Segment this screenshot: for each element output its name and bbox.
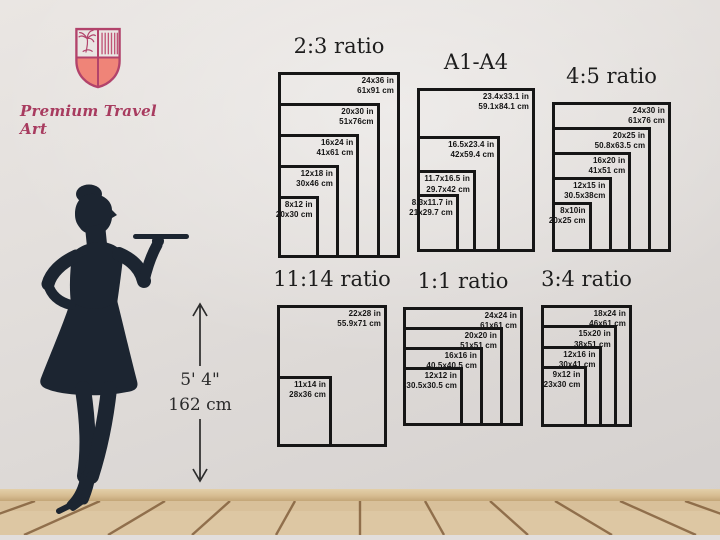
chart-title: 3:4 ratio	[501, 267, 672, 297]
size-label: 16x20 in41x51 cm	[588, 156, 625, 177]
size-label: 22x28 in55.9x71 cm	[337, 309, 381, 330]
size-boxes: 24x24 in61x61 cm20x20 in51x51 cm16x16 in…	[403, 307, 523, 426]
size-chart-4-5-ratio: 4:5 ratio 24x30 in61x76 cm20x25 in50.8x6…	[552, 102, 671, 252]
shield-logo-icon	[71, 24, 125, 90]
size-label: 24x36 in61x91 cm	[357, 76, 394, 97]
size-boxes: 18x24 in46x61 cm15x20 in38x51 cm12x16 in…	[541, 305, 632, 427]
size-boxes: 23.4x33.1 in59.1x84.1 cm16.5x23.4 in42x5…	[417, 88, 535, 252]
size-box-11x14in: 11x14 in28x36 cm	[277, 376, 332, 447]
arrow-down-icon	[189, 419, 211, 483]
brand-logo: Premium Travel Art	[18, 24, 178, 138]
size-box-12x12in: 12x12 in30.5x30.5 cm	[403, 367, 463, 427]
size-chart-a1-a4: A1-A4 23.4x33.1 in59.1x84.1 cm16.5x23.4 …	[417, 88, 535, 252]
size-label: 12x15 in30.5x38cm	[564, 181, 605, 202]
brand-name: Premium Travel Art	[18, 102, 178, 138]
size-box-8x10in: 8x10in20x25 cm	[552, 202, 592, 252]
size-label: 23.4x33.1 in59.1x84.1 cm	[478, 92, 529, 113]
size-boxes: 24x36 in61x91 cm20x30 in51x76cm16x24 in4…	[278, 72, 400, 258]
size-label: 24x30 in61x76 cm	[628, 106, 665, 127]
height-marker: 5' 4" 162 cm	[164, 302, 236, 483]
size-box-8.3x11.7in: 8.3x11.7 in21x29.7 cm	[417, 194, 459, 252]
size-label: 16x24 in41x61 cm	[316, 138, 353, 159]
size-boxes: 24x30 in61x76 cm20x25 in50.8x63.5 cm16x2…	[552, 102, 671, 252]
height-cm-label: 162 cm	[168, 393, 232, 418]
size-label: 8.3x11.7 in21x29.7 cm	[409, 198, 453, 219]
arrow-up-icon	[189, 302, 211, 366]
size-label: 12x18 in30x46 cm	[296, 169, 333, 190]
size-label: 8x12 in20x30 cm	[276, 200, 313, 221]
size-label: 9x12 in23x30 cm	[544, 370, 581, 391]
size-box-9x12in: 9x12 in23x30 cm	[541, 366, 587, 427]
size-label: 11x14 in28x36 cm	[289, 380, 326, 401]
size-label: 11.7x16.5 in29.7x42 cm	[424, 174, 470, 195]
size-label: 20x30 in51x76cm	[339, 107, 374, 128]
size-label: 16.5x23.4 in42x59.4 cm	[448, 140, 494, 161]
size-boxes: 22x28 in55.9x71 cm11x14 in28x36 cm	[277, 305, 387, 447]
size-chart-11-14-ratio: 11:14 ratio 22x28 in55.9x71 cm11x14 in28…	[277, 305, 387, 447]
chart-title: 4:5 ratio	[512, 64, 711, 94]
size-label: 20x25 in50.8x63.5 cm	[595, 131, 646, 152]
size-chart-2-3-ratio: 2:3 ratio 24x36 in61x91 cm20x30 in51x76c…	[278, 72, 400, 258]
size-label: 8x10in20x25 cm	[549, 206, 586, 227]
size-chart-3-4-ratio: 3:4 ratio 18x24 in46x61 cm15x20 in38x51 …	[541, 305, 632, 427]
size-label: 12x12 in30.5x30.5 cm	[406, 371, 457, 392]
size-box-8x12in: 8x12 in20x30 cm	[278, 196, 319, 258]
size-chart-1-1-ratio: 1:1 ratio 24x24 in61x61 cm20x20 in51x51 …	[403, 307, 523, 426]
height-feet-label: 5' 4"	[168, 368, 232, 393]
